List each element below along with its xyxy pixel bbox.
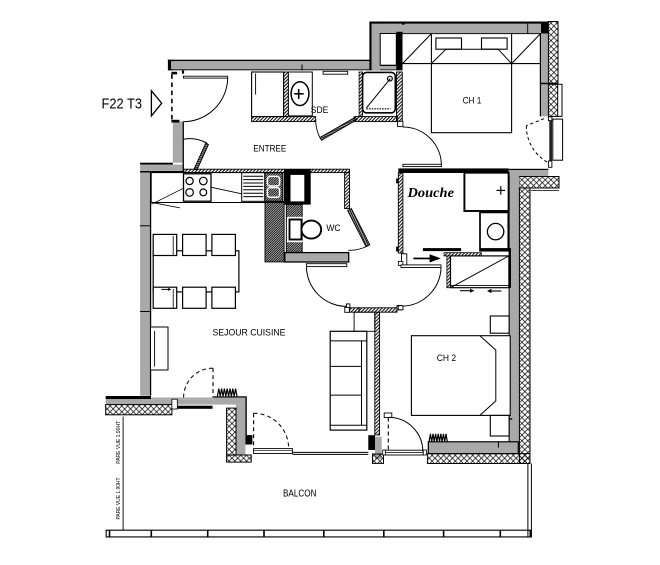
svg-text:Douche: Douche [406,186,454,201]
svg-text:PARE VUE 1.90HT: PARE VUE 1.90HT [116,420,122,464]
svg-text:SEJOUR CUISINE: SEJOUR CUISINE [213,328,286,339]
svg-text:CH 1: CH 1 [463,96,482,107]
svg-text:ENTREE: ENTREE [253,144,286,155]
svg-text:SDE: SDE [311,105,329,116]
svg-text:BALCON: BALCON [283,489,317,500]
svg-text:F22 T3: F22 T3 [102,95,143,112]
svg-text:WC: WC [326,223,340,234]
svg-text:PARE VUE 1.90HT: PARE VUE 1.90HT [116,477,122,520]
svg-text:CH 2: CH 2 [437,353,456,364]
